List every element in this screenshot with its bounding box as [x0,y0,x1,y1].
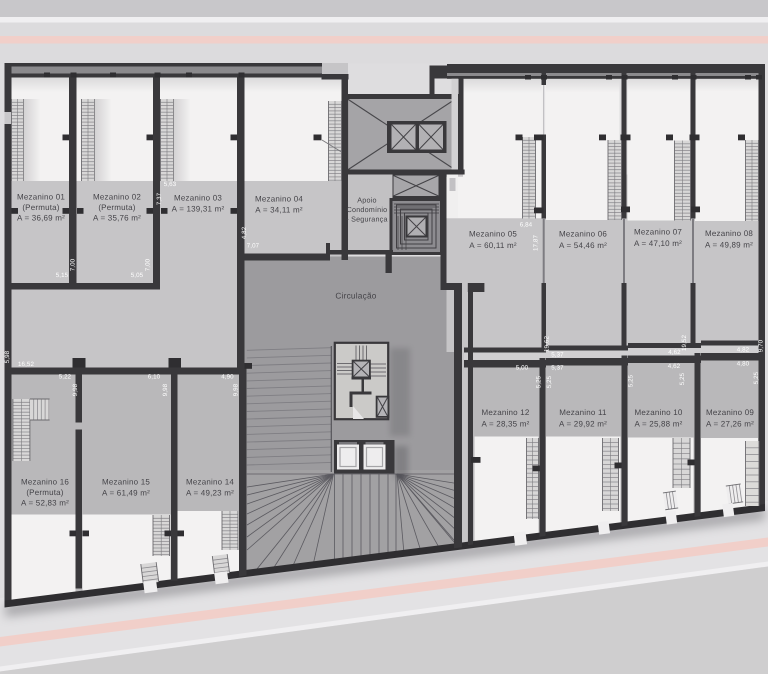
svg-text:Condomínio: Condomínio [347,205,388,214]
svg-text:7,00: 7,00 [70,258,77,271]
svg-text:Mezanino 08: Mezanino 08 [705,229,753,238]
svg-text:(Permuta): (Permuta) [98,203,135,212]
svg-text:A = 47,10 m²: A = 47,10 m² [634,239,682,248]
svg-text:Mezanino 02: Mezanino 02 [93,193,141,202]
svg-text:16,52: 16,52 [18,361,34,368]
svg-text:7,00: 7,00 [145,258,152,271]
svg-text:19,62: 19,62 [544,336,551,352]
svg-text:A = 27,26 m²: A = 27,26 m² [706,420,754,429]
svg-text:Mezanino 16: Mezanino 16 [21,478,69,487]
svg-text:5,25: 5,25 [546,375,553,388]
svg-text:9,98: 9,98 [233,383,240,396]
svg-text:Mezanino 14: Mezanino 14 [186,478,234,487]
svg-text:Apoio: Apoio [357,196,376,205]
svg-text:5,25: 5,25 [753,371,760,384]
svg-text:A = 54,46 m²: A = 54,46 m² [559,241,607,250]
svg-text:A = 49,23 m²: A = 49,23 m² [186,489,234,498]
svg-text:9,98: 9,98 [162,383,169,396]
svg-text:- Segurança: - Segurança [346,215,387,224]
svg-text:5,37: 5,37 [551,365,564,372]
svg-text:7,07: 7,07 [247,243,260,250]
svg-text:A = 49,89 m²: A = 49,89 m² [705,241,753,250]
svg-text:A = 29,92 m²: A = 29,92 m² [559,420,607,429]
svg-text:4,80: 4,80 [737,361,750,368]
svg-text:A = 139,31 m²: A = 139,31 m² [172,205,225,214]
svg-text:19,52: 19,52 [681,335,688,351]
svg-text:Circulação: Circulação [335,291,376,301]
svg-text:A = 28,35 m²: A = 28,35 m² [482,420,530,429]
svg-text:5,63: 5,63 [164,181,177,188]
svg-text:Mezanino 11: Mezanino 11 [559,408,607,417]
svg-text:(Permuta): (Permuta) [26,488,63,497]
svg-text:A = 25,88 m²: A = 25,88 m² [635,420,683,429]
svg-text:A = 34,11 m²: A = 34,11 m² [255,206,303,215]
svg-text:Mezanino 15: Mezanino 15 [102,478,150,487]
svg-text:4,82: 4,82 [241,226,248,239]
svg-text:5,15: 5,15 [56,272,69,279]
svg-text:5,00: 5,00 [516,365,529,372]
svg-text:Mezanino 01: Mezanino 01 [17,193,65,202]
svg-text:Mezanino 04: Mezanino 04 [255,195,303,204]
svg-text:Mezanino 06: Mezanino 06 [559,230,607,239]
svg-text:A = 36,69 m²: A = 36,69 m² [17,214,65,223]
svg-text:6,84: 6,84 [520,222,533,229]
svg-text:6,10: 6,10 [148,374,161,381]
svg-text:5,37: 5,37 [551,352,564,359]
svg-text:Mezanino 03: Mezanino 03 [174,194,222,203]
svg-text:Mezanino 09: Mezanino 09 [706,408,754,417]
svg-text:4,90: 4,90 [221,374,234,381]
svg-text:4,82: 4,82 [737,347,750,354]
svg-text:5,25: 5,25 [679,372,686,385]
svg-text:A = 61,49 m²: A = 61,49 m² [102,489,150,498]
svg-text:(Permuta): (Permuta) [22,203,59,212]
svg-text:17,87: 17,87 [533,235,540,251]
svg-text:9,70: 9,70 [758,339,765,352]
svg-text:4,62: 4,62 [668,363,681,370]
svg-text:5,05: 5,05 [131,272,144,279]
svg-text:A = 35,76 m²: A = 35,76 m² [93,214,141,223]
svg-text:5,25: 5,25 [628,374,635,387]
svg-text:Mezanino 05: Mezanino 05 [469,230,517,239]
svg-text:Mezanino 07: Mezanino 07 [634,228,682,237]
svg-text:5,98: 5,98 [4,350,11,363]
svg-text:7,37: 7,37 [156,192,163,205]
svg-text:A = 52,83 m²: A = 52,83 m² [21,499,69,508]
svg-text:Mezanino 10: Mezanino 10 [634,408,682,417]
svg-text:Mezanino 12: Mezanino 12 [481,408,529,417]
svg-text:9,98: 9,98 [72,383,79,396]
svg-text:4,62: 4,62 [668,349,681,356]
svg-text:5,25: 5,25 [536,375,543,388]
svg-text:A = 60,11 m²: A = 60,11 m² [469,241,517,250]
svg-text:5,22: 5,22 [59,374,72,381]
